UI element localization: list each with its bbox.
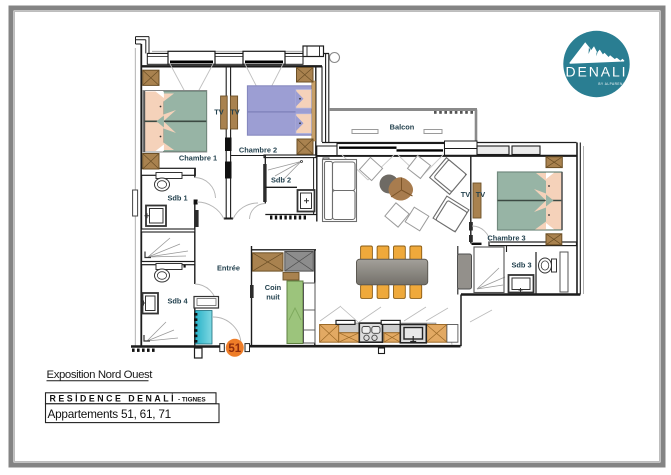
svg-text:Sdb 4: Sdb 4 [167, 297, 188, 306]
svg-text:Sdb 1: Sdb 1 [167, 194, 187, 203]
svg-text:Appartements 51, 61, 71: Appartements 51, 61, 71 [48, 407, 171, 421]
svg-text:Exposition Nord Ouest: Exposition Nord Ouest [47, 369, 154, 381]
svg-text:Entrée: Entrée [217, 264, 240, 273]
svg-text:Chambre 2: Chambre 2 [239, 146, 277, 155]
svg-text:Sdb 2: Sdb 2 [271, 176, 291, 185]
svg-text:RESİDENCE DENALİ: RESİDENCE DENALİ [50, 394, 177, 404]
svg-text:Sdb 3: Sdb 3 [511, 261, 531, 270]
svg-text:BY ALPARENA: BY ALPARENA [598, 82, 626, 86]
svg-text:TV: TV [476, 190, 486, 199]
svg-text:DENALI: DENALI [566, 64, 628, 80]
svg-text:51: 51 [228, 343, 241, 355]
svg-text:Chambre 1: Chambre 1 [179, 154, 217, 163]
svg-text:Chambre 3: Chambre 3 [487, 234, 525, 243]
svg-text:Balcon: Balcon [390, 123, 415, 132]
svg-text:- TIGNES: - TIGNES [178, 396, 206, 403]
svg-text:TV: TV [214, 108, 224, 117]
svg-text:Coin: Coin [265, 283, 282, 292]
svg-text:TV: TV [461, 190, 471, 199]
svg-text:nuit: nuit [266, 293, 280, 302]
svg-text:TV: TV [230, 108, 240, 117]
